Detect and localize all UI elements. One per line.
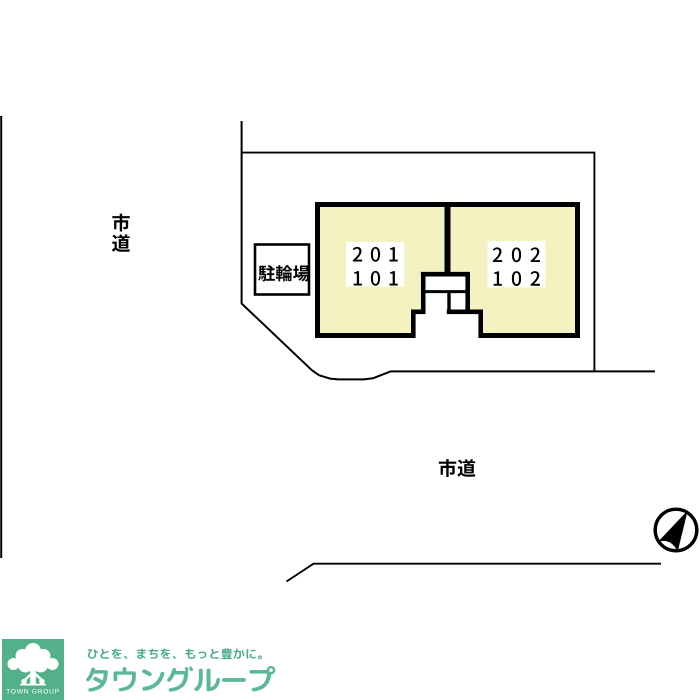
svg-text:TOWN GROUP: TOWN GROUP [6,689,60,696]
